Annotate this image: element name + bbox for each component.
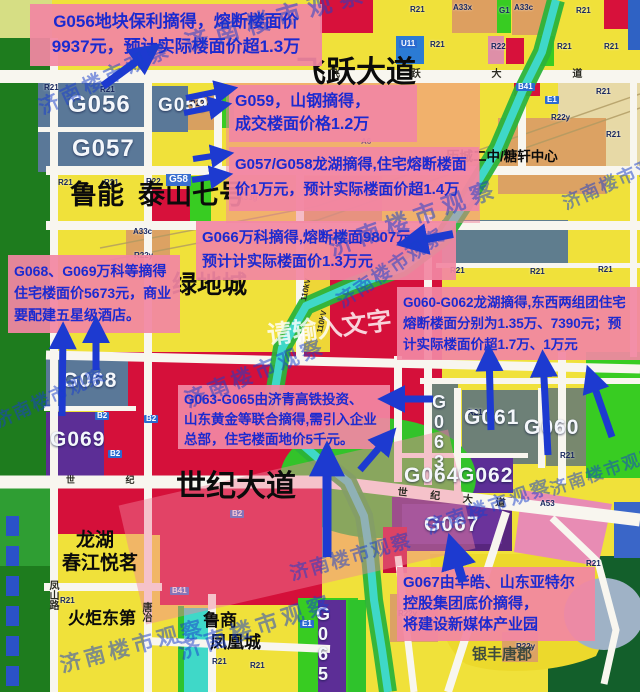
watermark-brand: 济南楼市观察 [182, 0, 373, 57]
jinan-land-auction-map: A33xG1A33cR21R21U11R21R22R21R21R21R21R22… [0, 0, 640, 692]
watermark-brand: 济南楼市观察 [182, 336, 329, 412]
watermark-brand: 济南楼市观察 [36, 39, 175, 118]
watermark-brand: 济南楼市观察 [548, 445, 640, 498]
watermark-brand: 济南楼市观察 [0, 365, 109, 430]
watermarks-layer: 济南楼市观察济南楼市观察济南楼市观察济南楼市观察济南楼市观察济南楼市观察济南楼市… [0, 0, 640, 692]
watermark-brand: 济南楼市观察 [288, 531, 414, 584]
watermark-brand: 济南楼市观察 [424, 477, 555, 538]
watermark-brand: 济南楼市观察 [560, 147, 640, 212]
